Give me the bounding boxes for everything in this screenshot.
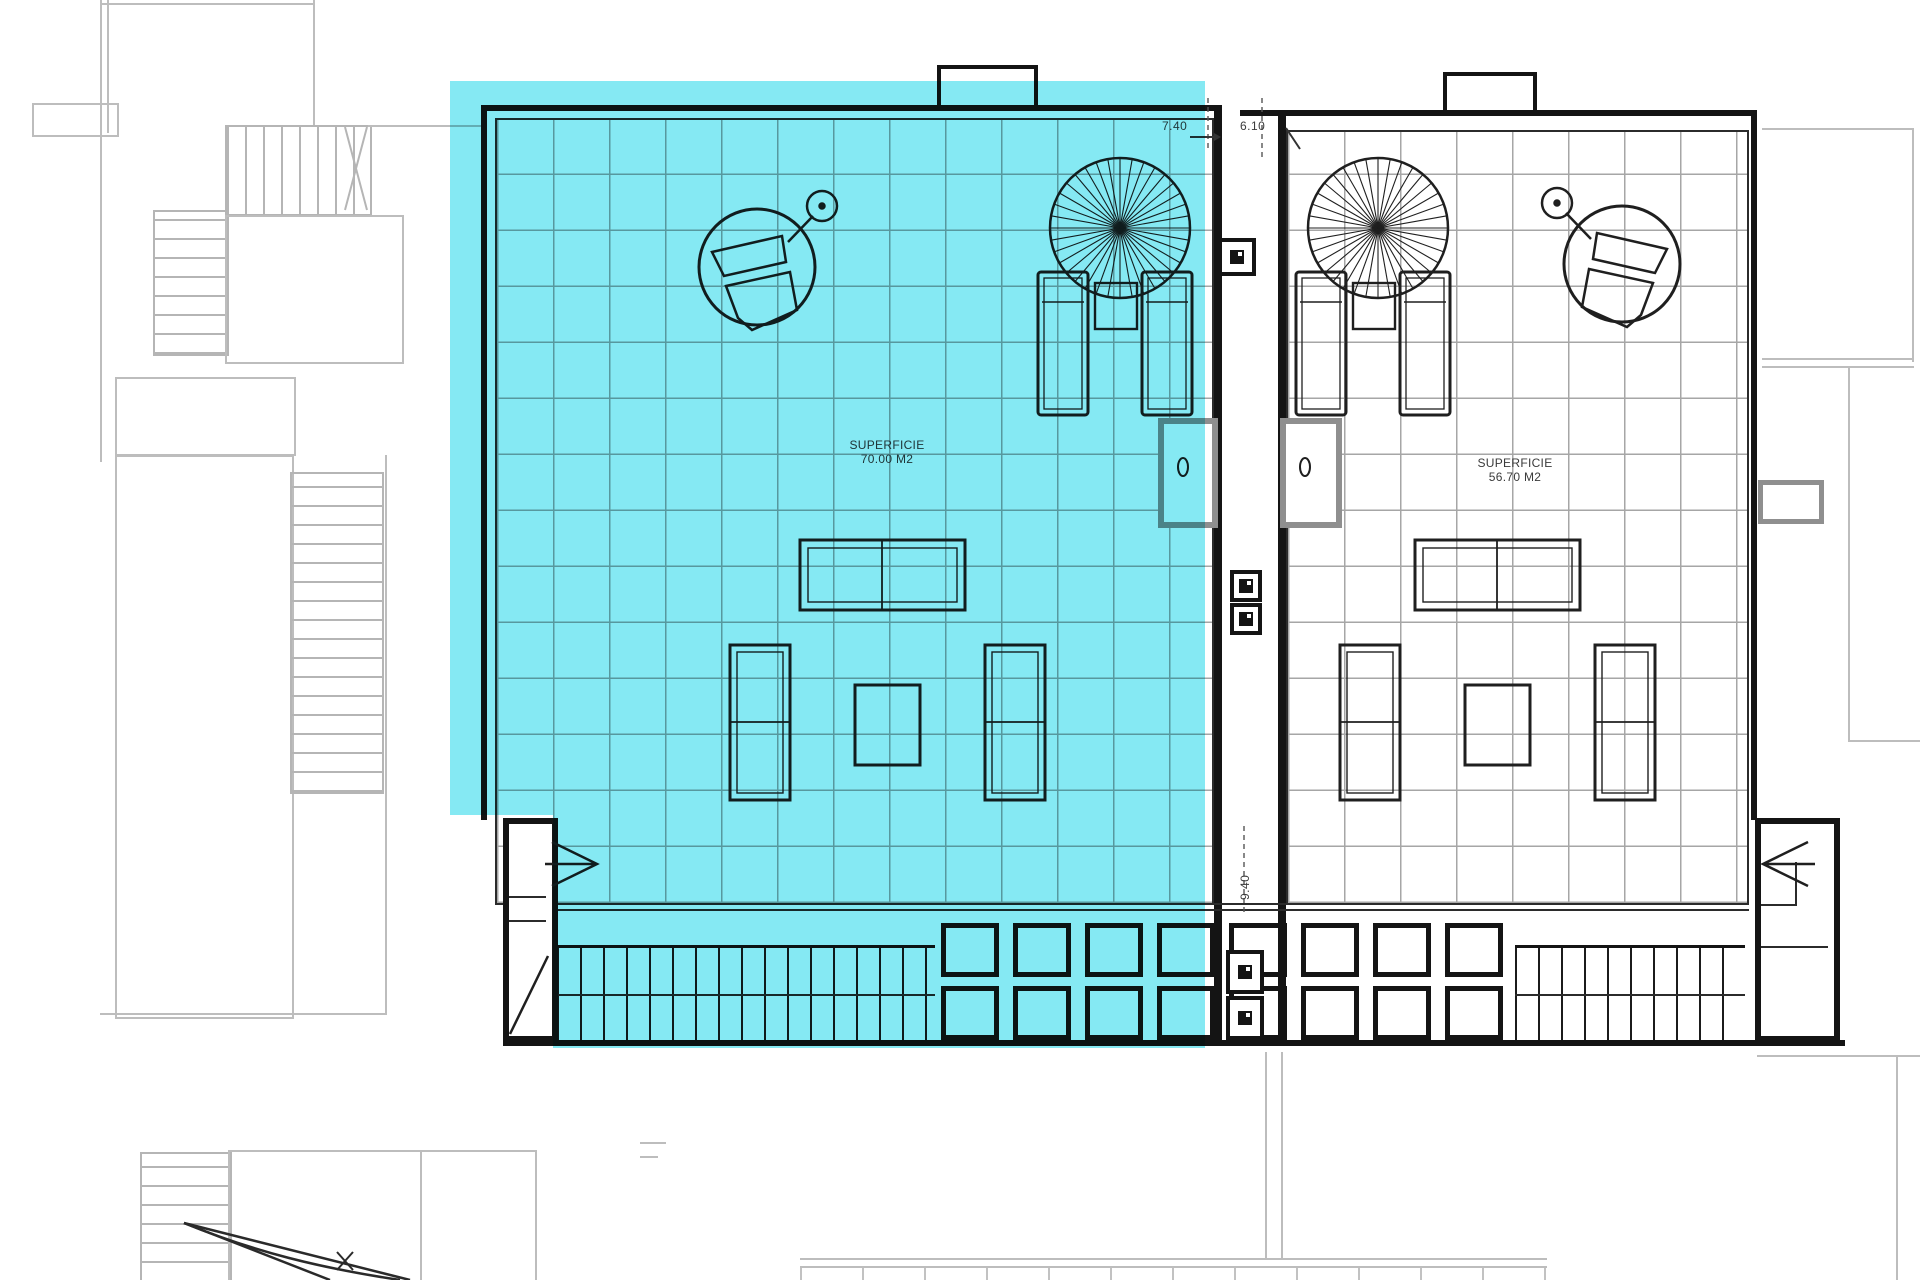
floor-plan-canvas: SUPERFICIE 70.00 M2 SUPERFICIE 56.70 M2 … [0, 0, 1920, 1280]
selected-terrace-highlight[interactable] [450, 81, 1205, 1048]
highlight-overlay[interactable] [0, 0, 1920, 1280]
